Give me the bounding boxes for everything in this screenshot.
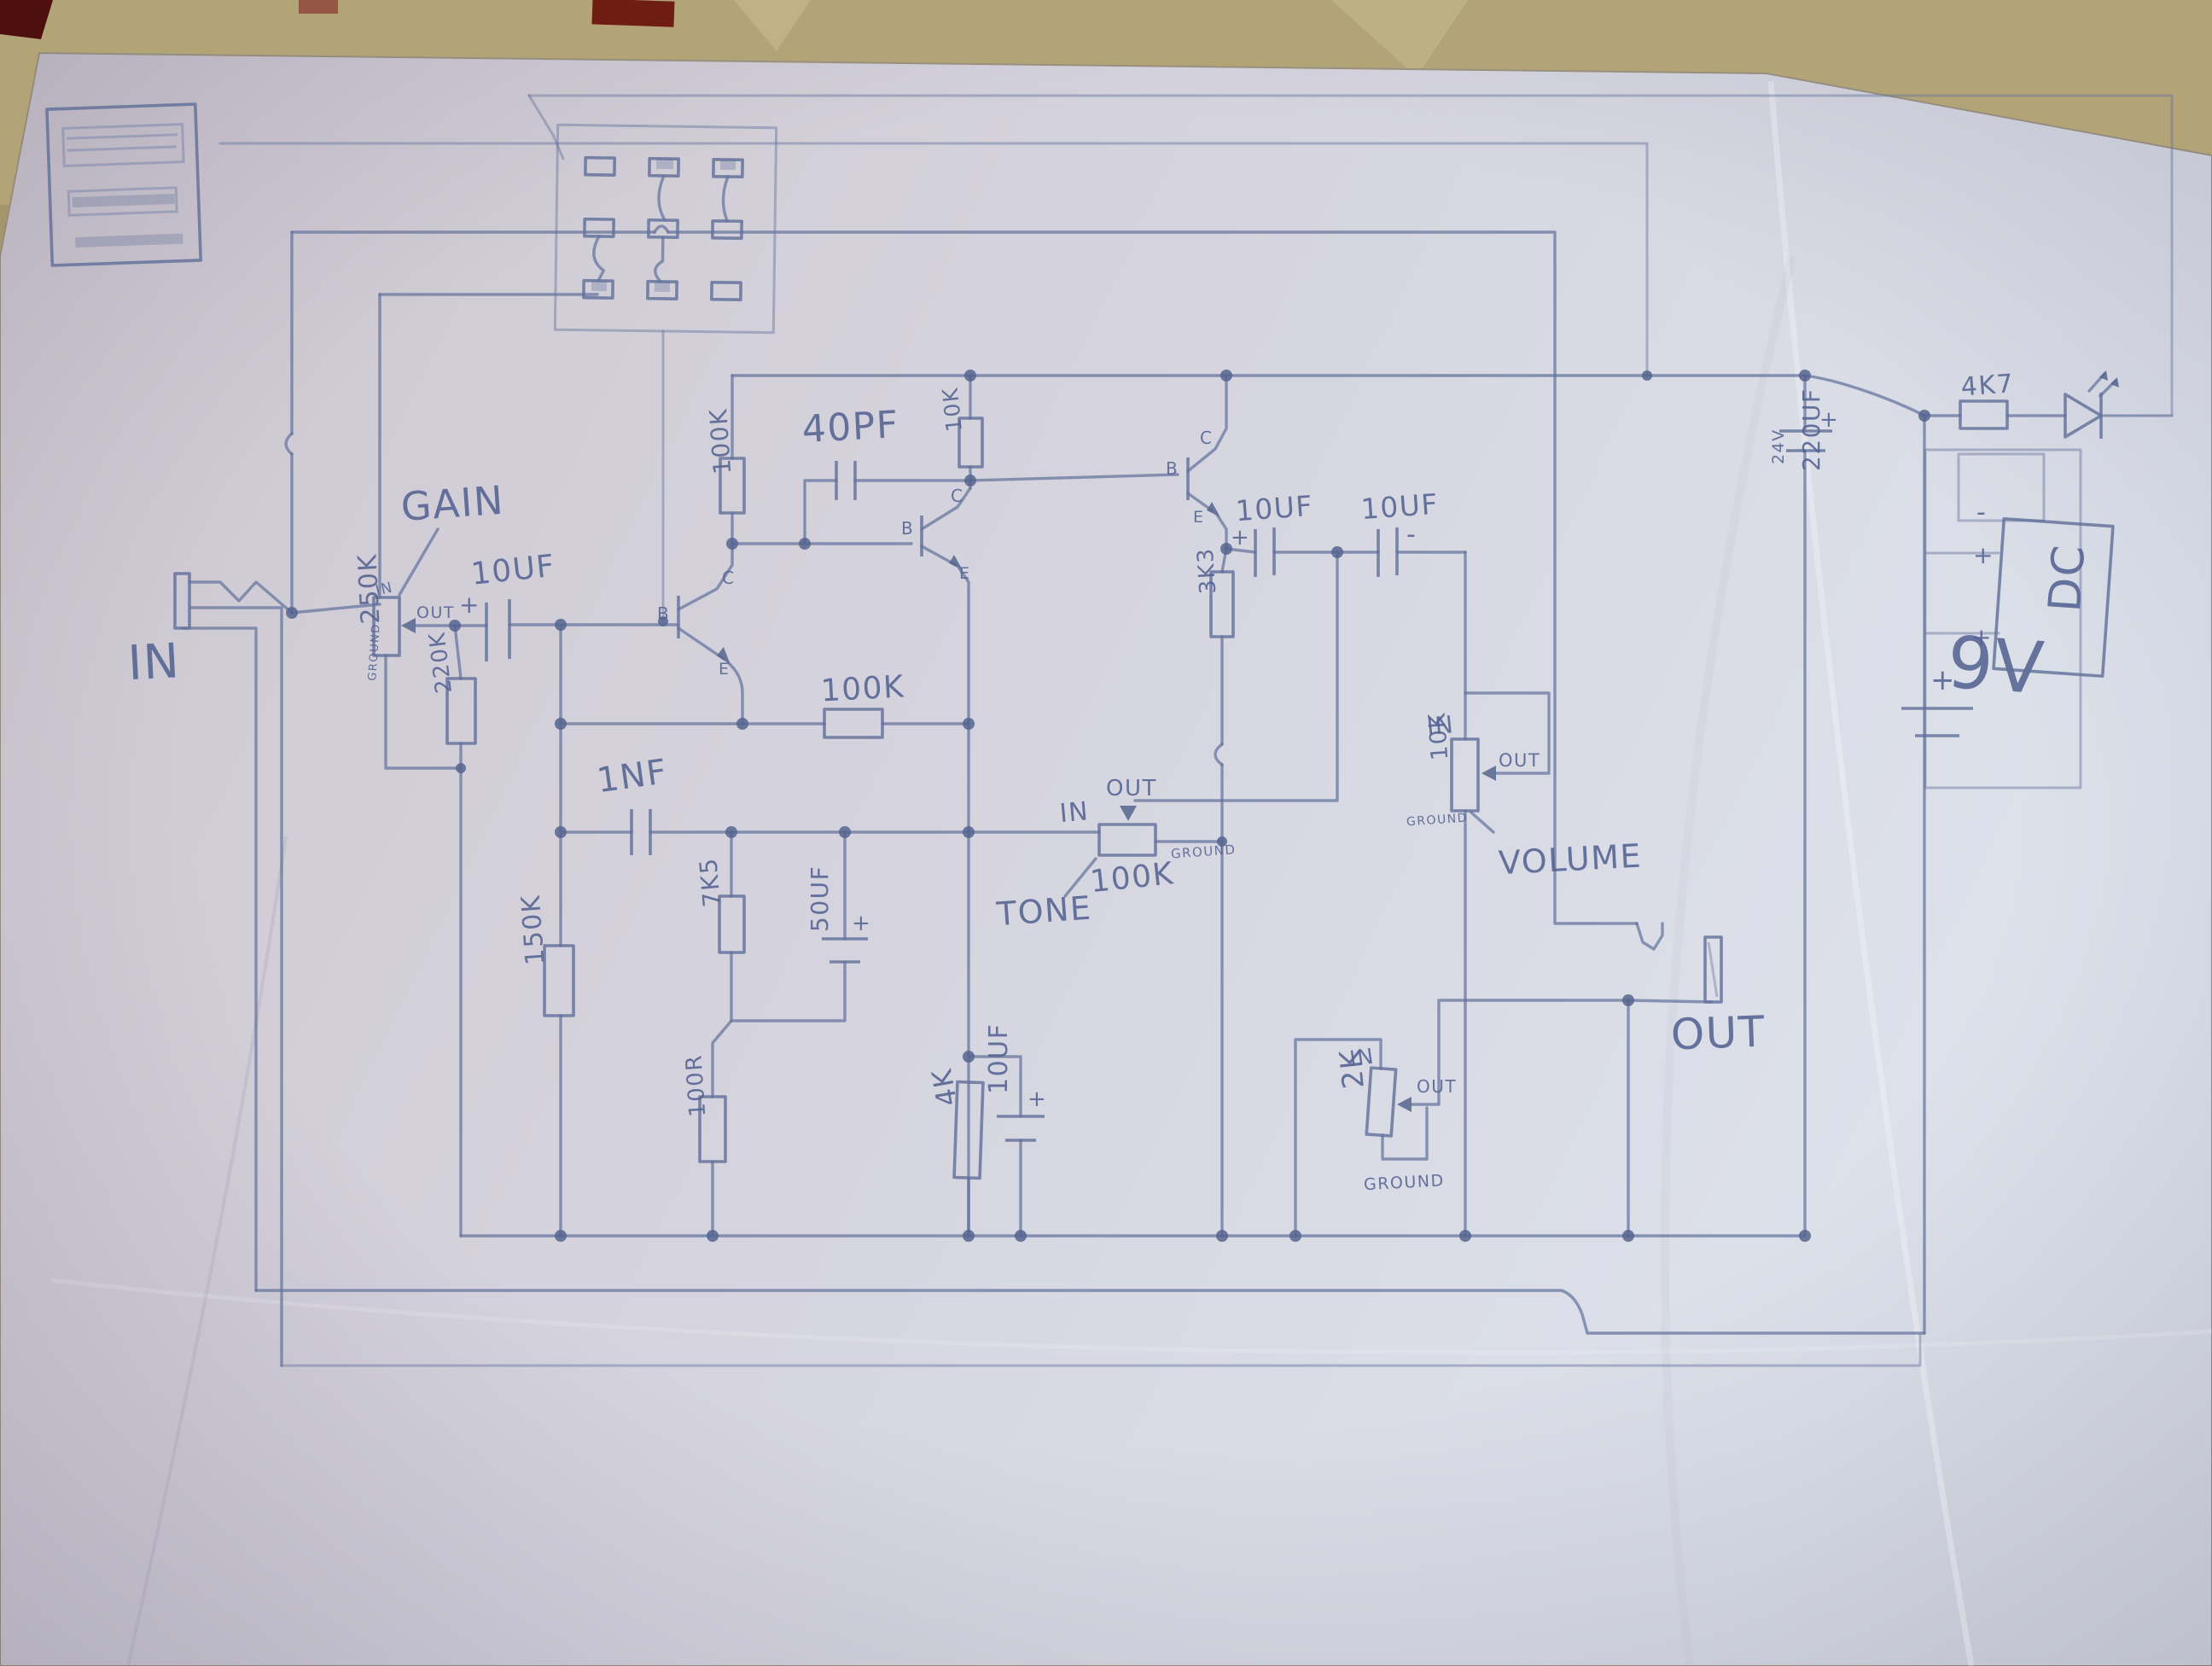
out-jack-label: OUT bbox=[1670, 1007, 1767, 1060]
in-jack-label: IN bbox=[126, 633, 182, 691]
q1-c-label: C bbox=[722, 568, 735, 588]
gain-label: GAIN bbox=[399, 477, 506, 530]
resistor-100k-load-value: 100K bbox=[704, 407, 736, 475]
resistor-10k-value: 10K bbox=[938, 386, 967, 433]
resistor-4k-value: 4K bbox=[925, 1066, 963, 1109]
cap-40pf-label: 40PF bbox=[801, 403, 900, 451]
dc-plus-1: + bbox=[1973, 541, 1994, 569]
cap-10uf-a-plus: + bbox=[1231, 525, 1250, 550]
volume-label: VOLUME bbox=[1498, 837, 1643, 883]
photo-of-schematic: IN GAIN IN 250K OUT GROUND 220K bbox=[0, 0, 2212, 1666]
dark-patch-center bbox=[592, 0, 675, 27]
resistor-100k-feedback-value: 100K bbox=[820, 669, 905, 708]
cap-10uf-bypass-plus: + bbox=[1027, 1086, 1047, 1112]
cap-10uf-a-label: 10UF bbox=[1234, 489, 1314, 527]
gain-pot-value: 250K bbox=[352, 552, 386, 625]
paper-sheet bbox=[0, 53, 2212, 1666]
cap-50uf-plus: + bbox=[852, 911, 871, 936]
cap-220uf-voltage: 24V bbox=[1769, 428, 1788, 464]
resistor-4k7-value: 4K7 bbox=[1960, 369, 2016, 402]
q2-b-label: B bbox=[901, 518, 914, 539]
q2-e-label: E bbox=[959, 564, 971, 583]
cap-10uf-input-plus: + bbox=[459, 591, 480, 619]
resistor-3k3-value: 3K3 bbox=[1193, 546, 1222, 595]
q1-e-label: E bbox=[719, 660, 731, 679]
cap-50uf-label: 50UF bbox=[806, 865, 834, 932]
q3-c-label: C bbox=[1200, 428, 1213, 448]
dc-plus-2: + bbox=[1971, 623, 1993, 651]
cap-220uf-plus: + bbox=[1819, 407, 1839, 433]
p2k-value: 2K bbox=[1333, 1047, 1371, 1091]
dc-minus: - bbox=[1976, 498, 1987, 527]
q3-e-label: E bbox=[1193, 508, 1205, 527]
tone-pot-in-label: IN bbox=[1058, 796, 1090, 829]
gain-pot-out-label: OUT bbox=[416, 603, 455, 622]
cap-10uf-b-plus: - bbox=[1406, 520, 1417, 550]
resistor-100r-value: 100R bbox=[681, 1053, 711, 1118]
resistor-150k-value: 150K bbox=[516, 894, 551, 966]
vol-pot-out-label: OUT bbox=[1499, 750, 1540, 771]
tone-label: TONE bbox=[994, 889, 1092, 934]
q2-c-label: C bbox=[951, 486, 963, 506]
dc-jack-label: DC bbox=[2040, 543, 2095, 614]
cap-10uf-b-label: 10UF bbox=[1359, 487, 1440, 526]
vol-pot-value: 10K bbox=[1423, 711, 1453, 761]
p2k-out-label: OUT bbox=[1417, 1076, 1457, 1097]
q3-b-label: B bbox=[1166, 458, 1179, 479]
tone-pot-out-label: OUT bbox=[1106, 776, 1157, 801]
resistor-7k5-value: 7K5 bbox=[694, 856, 726, 908]
cap-10uf-bypass-label: 10UF bbox=[984, 1023, 1014, 1094]
